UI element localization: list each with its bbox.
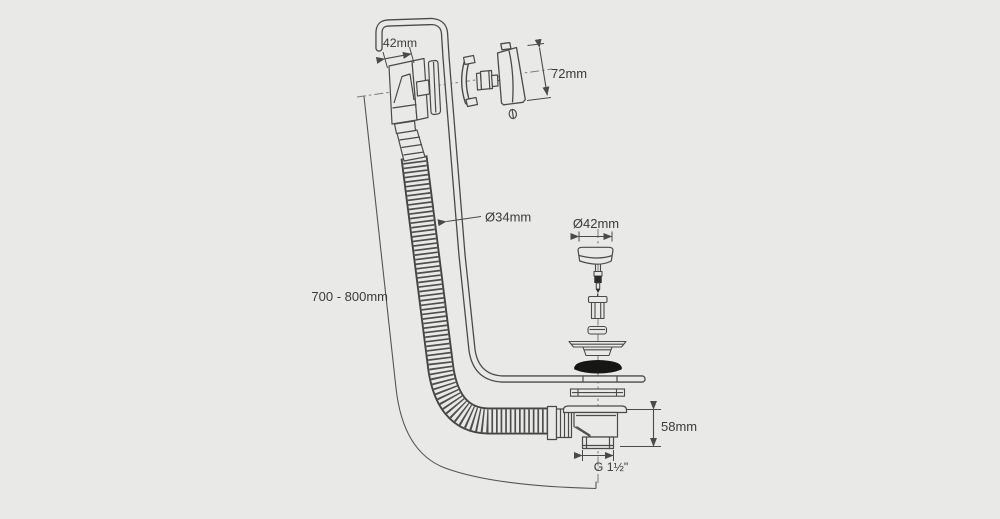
plug-diameter-label: Ø42mm (573, 216, 619, 231)
plug-diameter-dimension: Ø42mm (573, 216, 619, 242)
outlet-thread-label: G 1½" (594, 460, 628, 474)
overflow-body (389, 59, 430, 162)
hose-diameter-label: Ø34mm (485, 210, 531, 225)
waste-strainer (569, 342, 626, 356)
overflow-cover-cap (498, 43, 526, 105)
plug-screw (589, 294, 608, 319)
plug-washer (588, 327, 607, 335)
overflow-gasket (428, 61, 440, 115)
overflow-rocker (464, 56, 478, 107)
installation-length-label: 700 - 800mm (311, 289, 388, 304)
waste-height-label: 58mm (661, 419, 697, 434)
technical-diagram: 700 - 800mm (0, 0, 1000, 519)
overflow-width-label: 42mm (383, 36, 417, 50)
diagram-canvas: 700 - 800mm (0, 0, 1000, 519)
cap-height-dimension: 72mm (527, 44, 587, 101)
cap-screw (509, 109, 517, 119)
waste-outlet (583, 437, 614, 449)
bath-floor-gasket (571, 389, 625, 396)
outlet-thread-dimension: G 1½" (583, 450, 629, 474)
cap-height-label: 72mm (551, 66, 587, 81)
waste-rubber-seal (574, 360, 622, 374)
plug-cap (578, 247, 613, 264)
waste-body (564, 406, 627, 449)
waste-height-dimension: 58mm (620, 410, 697, 447)
